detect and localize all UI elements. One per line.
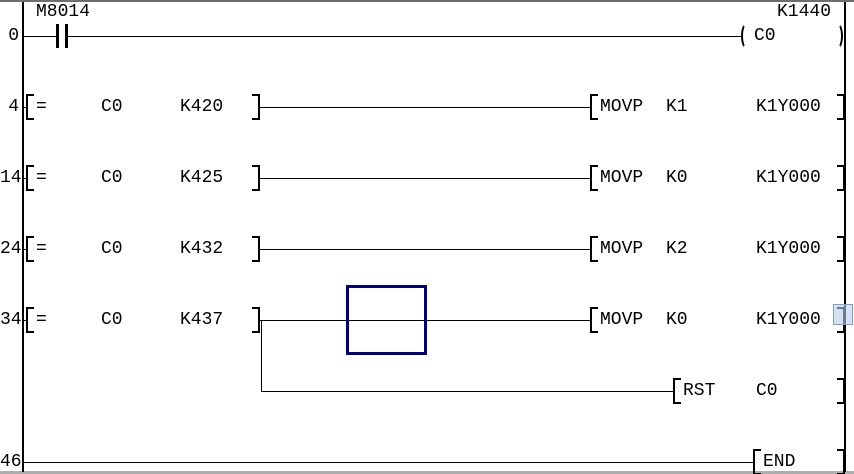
instruction-dest: K1Y000 xyxy=(756,167,821,189)
ladder-editor-canvas: 0 M8014 K1440 C0 4 = C0 K420 MOVP K1 K1Y… xyxy=(0,0,854,474)
instruction-mnemonic: MOVP xyxy=(600,96,643,118)
instruction-source: K1 xyxy=(666,96,688,118)
left-bracket xyxy=(26,307,34,333)
left-bracket xyxy=(26,165,34,191)
branch-wire xyxy=(261,320,262,391)
coil-preset-label: K1440 xyxy=(777,2,831,22)
instruction-dest: K1Y000 xyxy=(756,309,821,331)
wire xyxy=(24,462,755,463)
compare-op: = xyxy=(36,167,47,189)
compare-instruction[interactable]: = C0 K420 xyxy=(26,94,260,120)
instruction-source: K0 xyxy=(666,309,688,331)
instruction-source: K2 xyxy=(666,238,688,260)
right-bracket xyxy=(252,165,260,191)
compare-op: = xyxy=(36,238,47,260)
instruction-operand: C0 xyxy=(756,380,778,402)
left-power-rail xyxy=(22,2,24,472)
rung-number: 0 xyxy=(0,25,19,47)
counter-coil-c0[interactable]: C0 xyxy=(741,23,843,49)
compare-op: = xyxy=(36,96,47,118)
compare-left-operand: C0 xyxy=(101,309,123,331)
compare-right-operand: K432 xyxy=(180,238,223,260)
instruction-mnemonic: MOVP xyxy=(600,167,643,189)
left-bracket xyxy=(590,307,598,333)
right-bracket xyxy=(837,449,845,474)
instruction-mnemonic: MOVP xyxy=(600,238,643,260)
instruction-mnemonic: RST xyxy=(683,380,715,402)
right-bracket xyxy=(252,236,260,262)
rung-number: 34 xyxy=(0,309,19,331)
right-bracket xyxy=(837,94,845,120)
movp-instruction[interactable]: MOVP K0 K1Y000 xyxy=(590,307,845,333)
wire xyxy=(260,249,590,250)
edit-cursor[interactable] xyxy=(346,285,427,355)
compare-instruction[interactable]: = C0 K432 xyxy=(26,236,260,262)
wire xyxy=(260,178,590,179)
left-bracket xyxy=(590,94,598,120)
left-bracket xyxy=(590,165,598,191)
rst-instruction[interactable]: RST C0 xyxy=(673,378,845,404)
compare-instruction[interactable]: = C0 K437 xyxy=(26,307,260,333)
instruction-dest: K1Y000 xyxy=(756,96,821,118)
right-bracket xyxy=(837,236,845,262)
wire xyxy=(68,36,741,37)
right-bracket xyxy=(837,378,845,404)
window-top-border xyxy=(0,0,854,2)
rung-number: 14 xyxy=(0,167,19,189)
right-bracket xyxy=(252,94,260,120)
compare-op: = xyxy=(36,309,47,331)
left-bracket xyxy=(673,378,681,404)
rung-number: 24 xyxy=(0,238,19,260)
right-bracket xyxy=(837,165,845,191)
compare-left-operand: C0 xyxy=(101,96,123,118)
contact-bar xyxy=(56,24,59,48)
end-instruction[interactable]: END xyxy=(753,449,845,474)
compare-right-operand: K437 xyxy=(180,309,223,331)
movp-instruction[interactable]: MOVP K2 K1Y000 xyxy=(590,236,845,262)
rung-number: 4 xyxy=(0,96,19,118)
wire xyxy=(260,107,590,108)
coil-right-paren xyxy=(832,23,843,49)
instruction-dest: K1Y000 xyxy=(756,238,821,260)
compare-right-operand: K425 xyxy=(180,167,223,189)
coil-device-label: C0 xyxy=(754,25,776,47)
instruction-mnemonic: MOVP xyxy=(600,309,643,331)
movp-instruction[interactable]: MOVP K1 K1Y000 xyxy=(590,94,845,120)
selection-highlight xyxy=(833,304,853,325)
instruction-source: K0 xyxy=(666,167,688,189)
left-bracket xyxy=(590,236,598,262)
compare-left-operand: C0 xyxy=(101,167,123,189)
wire xyxy=(261,391,673,392)
compare-right-operand: K420 xyxy=(180,96,223,118)
coil-left-paren xyxy=(741,23,752,49)
contact-label: M8014 xyxy=(36,2,90,22)
compare-instruction[interactable]: = C0 K425 xyxy=(26,165,260,191)
left-bracket xyxy=(26,94,34,120)
right-bracket xyxy=(252,307,260,333)
left-bracket xyxy=(753,449,761,474)
compare-left-operand: C0 xyxy=(101,238,123,260)
instruction-mnemonic: END xyxy=(763,451,795,473)
rung-number: 46 xyxy=(0,451,19,473)
movp-instruction[interactable]: MOVP K0 K1Y000 xyxy=(590,165,845,191)
left-bracket xyxy=(26,236,34,262)
